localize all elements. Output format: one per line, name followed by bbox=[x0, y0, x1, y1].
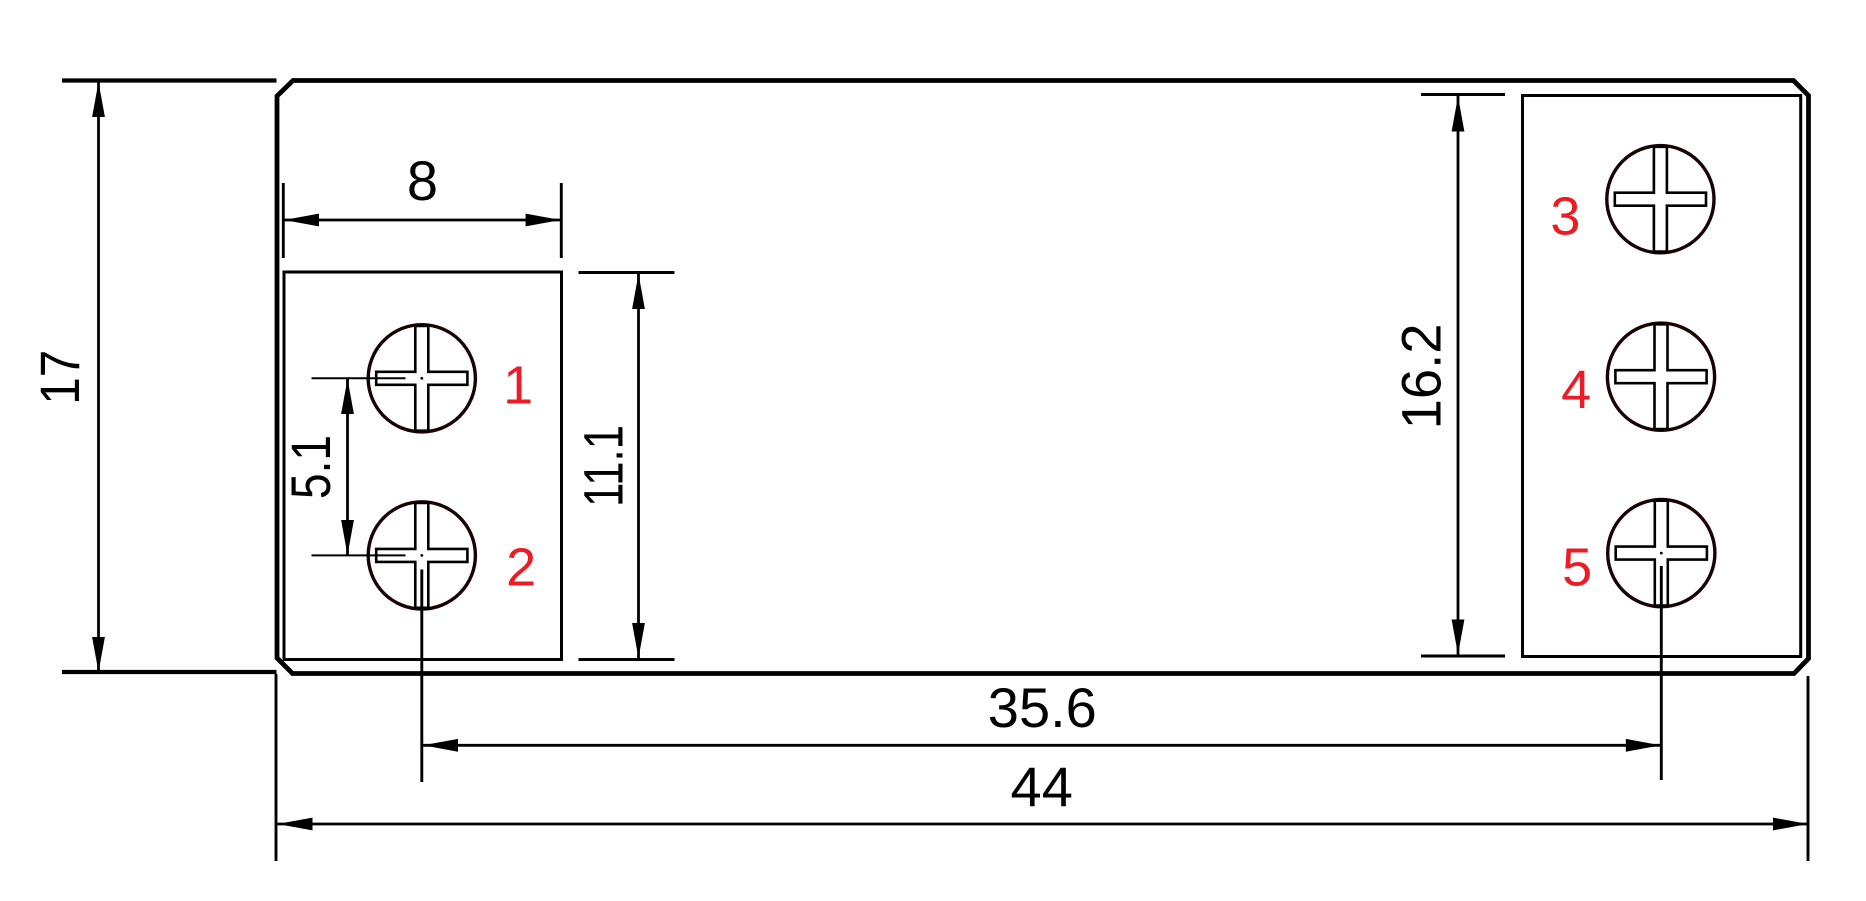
svg-text:5.1: 5.1 bbox=[279, 435, 342, 499]
svg-text:5: 5 bbox=[1562, 538, 1592, 598]
svg-text:17: 17 bbox=[28, 350, 91, 405]
svg-text:11.1: 11.1 bbox=[572, 425, 635, 507]
svg-text:2: 2 bbox=[506, 537, 536, 597]
svg-text:8: 8 bbox=[407, 149, 438, 212]
svg-text:35.6: 35.6 bbox=[988, 676, 1097, 739]
svg-text:16.2: 16.2 bbox=[1389, 323, 1452, 429]
svg-text:1: 1 bbox=[503, 356, 533, 416]
svg-text:44: 44 bbox=[1011, 755, 1073, 818]
svg-text:3: 3 bbox=[1550, 187, 1580, 247]
svg-text:4: 4 bbox=[1561, 360, 1591, 420]
